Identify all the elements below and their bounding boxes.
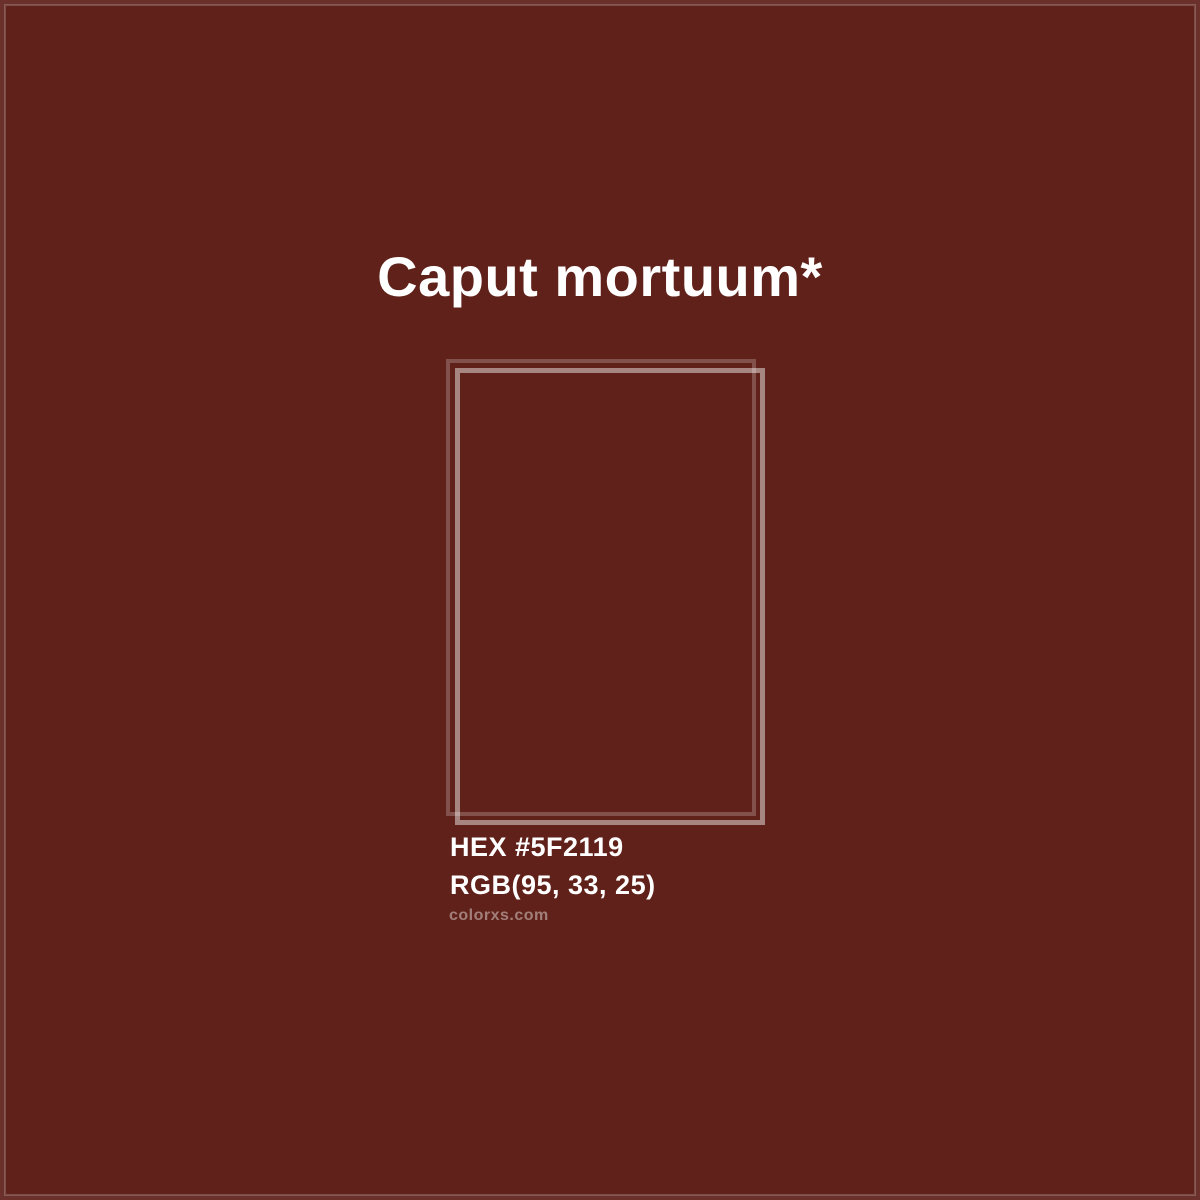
color-name-title: Caput mortuum*: [0, 249, 1200, 305]
rgb-value-label: RGB(95, 33, 25): [450, 872, 656, 899]
color-swatch-page: Caput mortuum* HEX #5F2119 RGB(95, 33, 2…: [0, 0, 1200, 1200]
swatch-frame-front: [455, 368, 765, 825]
site-watermark: colorxs.com: [449, 908, 549, 924]
hex-value-label: HEX #5F2119: [450, 834, 624, 861]
